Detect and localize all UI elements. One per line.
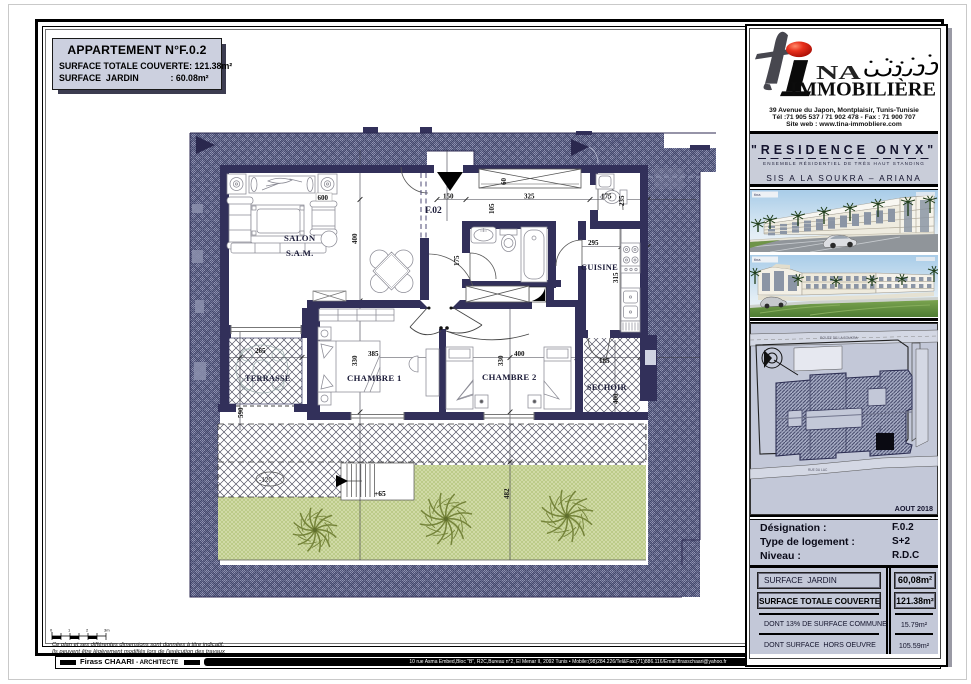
svg-text:S.A.M.: S.A.M.	[286, 248, 314, 258]
svg-text:325: 325	[524, 193, 535, 201]
svg-text:TERRASSE: TERRASSE	[245, 374, 291, 383]
svg-text:CHAMBRE 1: CHAMBRE 1	[347, 373, 402, 383]
svg-text:105: 105	[488, 203, 496, 214]
svg-text:175: 175	[601, 193, 612, 201]
svg-text:295: 295	[588, 239, 599, 247]
svg-text:ROUTE DE LA SOUKRA: ROUTE DE LA SOUKRA	[820, 336, 858, 340]
svg-text:F.03: F.03	[611, 137, 624, 145]
svg-text:-120: -120	[259, 476, 272, 484]
svg-text:CHAMBRE 2: CHAMBRE 2	[482, 372, 537, 382]
svg-text:AOUT 2018: AOUT 2018	[895, 504, 933, 513]
svg-text:SECHOIR: SECHOIR	[587, 383, 627, 392]
svg-text:482: 482	[503, 488, 511, 499]
svg-text:185: 185	[599, 357, 610, 365]
svg-text:3m: 3m	[104, 628, 110, 633]
svg-text:SALON: SALON	[284, 233, 316, 243]
svg-text:385: 385	[368, 350, 379, 358]
svg-text:235: 235	[618, 195, 626, 206]
svg-text:+65: +65	[374, 489, 386, 498]
svg-text:1: 1	[68, 628, 71, 633]
svg-text:2: 2	[86, 628, 89, 633]
svg-text:60: 60	[500, 178, 508, 186]
svg-text:CUISINE: CUISINE	[581, 263, 618, 272]
svg-text:tina: tina	[754, 192, 761, 197]
svg-text:330: 330	[497, 355, 505, 366]
svg-text:600: 600	[318, 194, 329, 202]
svg-text:F.02: F.02	[425, 206, 442, 216]
svg-text:590: 590	[237, 407, 245, 418]
svg-text:330: 330	[351, 355, 359, 366]
svg-text:400: 400	[514, 350, 525, 358]
svg-text:150: 150	[443, 193, 454, 201]
svg-text:RUE DU LAC: RUE DU LAC	[808, 468, 828, 472]
svg-text:400: 400	[351, 233, 359, 244]
svg-text:tina: tina	[754, 257, 761, 262]
svg-text:400: 400	[612, 393, 620, 404]
svg-text:315: 315	[612, 272, 620, 283]
svg-text:0: 0	[50, 628, 53, 633]
svg-text:265: 265	[255, 347, 266, 355]
svg-text:IMMOBILIÈRE: IMMOBILIÈRE	[790, 78, 936, 101]
svg-text:175: 175	[453, 255, 461, 266]
